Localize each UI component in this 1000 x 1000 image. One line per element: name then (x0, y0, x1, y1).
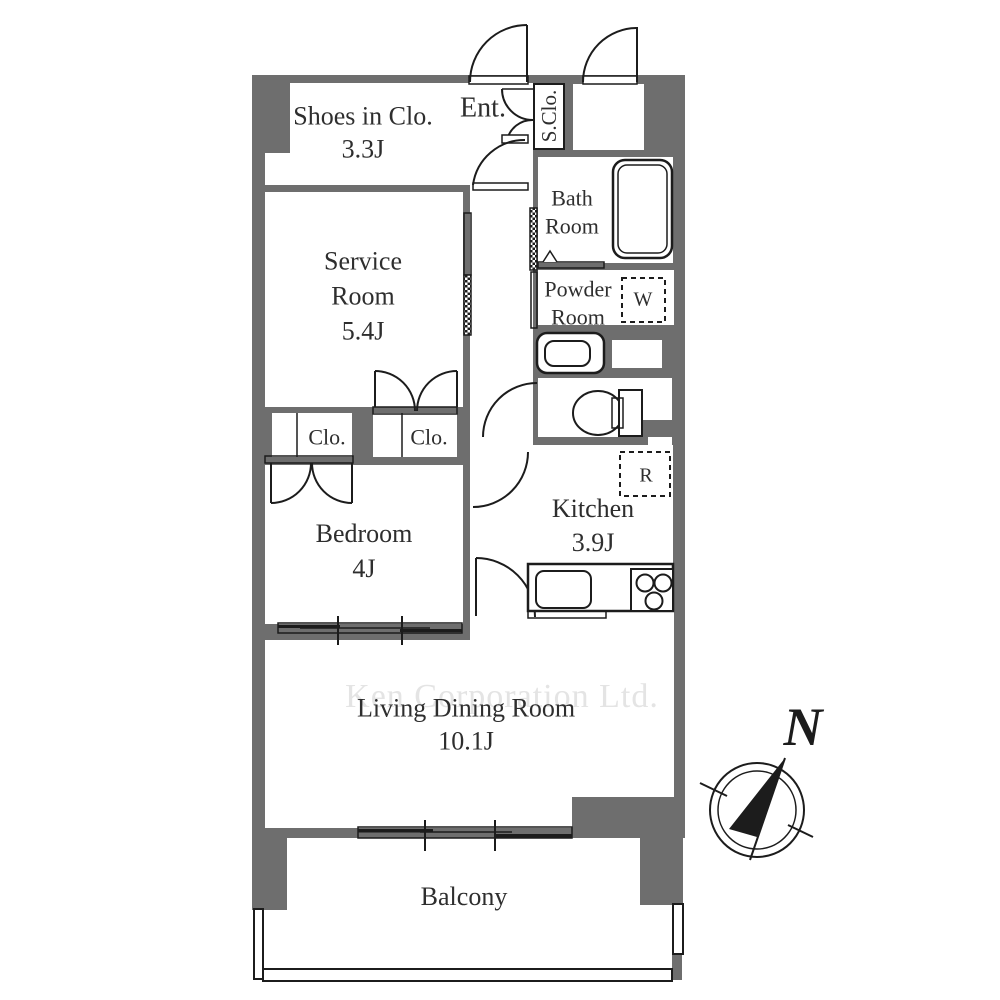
room-label-balcony: Balcony (421, 881, 508, 914)
living-balcony-window (358, 820, 572, 851)
kitchen-living-door (476, 558, 535, 617)
shoes-in-closet-size: 3.3J (293, 133, 432, 166)
room-label-bedroom: Bedroom 4J (316, 516, 413, 586)
kitchen-sink (536, 571, 591, 608)
bath-sliding-door (530, 208, 537, 328)
toilet-door (483, 383, 537, 437)
symbols-layer (0, 0, 1000, 1000)
shoes-in-closet-name: Shoes in Clo. (293, 101, 432, 134)
kitchen-size: 3.9J (552, 526, 634, 560)
closet-right-label: Clo. (410, 423, 447, 451)
room-label-entrance: Ent. (460, 91, 506, 126)
bath-line1: Bath (545, 185, 599, 213)
fridge-label: R (639, 464, 652, 489)
kitchen-name: Kitchen (552, 492, 634, 526)
living-size: 10.1J (357, 725, 575, 758)
room-label-service: Service Room 5.4J (324, 243, 402, 348)
service-closet-doors (373, 371, 457, 414)
toilet (573, 390, 642, 436)
washer-label: W (634, 288, 653, 313)
room-label-living-dining: Living Dining Room 10.1J (357, 693, 575, 758)
compass-north-label: N (784, 696, 823, 758)
compass-needle (729, 758, 785, 837)
room-label-powder: Powder Room (544, 276, 611, 331)
bath-line2: Room (545, 212, 599, 240)
stove (631, 569, 673, 611)
floorplan-canvas: Ken Corporation Ltd. Shoes in Clo. 3.3J … (0, 0, 1000, 1000)
washbasin (537, 333, 604, 373)
bathtub (613, 160, 672, 258)
bedroom-size: 4J (316, 551, 413, 586)
kitchen-counter (528, 564, 673, 618)
powder-line1: Powder (544, 276, 611, 304)
hall-door (473, 140, 528, 190)
service-size: 5.4J (324, 314, 402, 349)
room-label-shoes-in-closet: Shoes in Clo. 3.3J (293, 101, 432, 166)
entrance-door (469, 25, 528, 84)
closet-left-label: Clo. (308, 423, 345, 451)
powder-line2: Room (544, 303, 611, 331)
service-line1: Service (324, 243, 402, 278)
room-label-bath: Bath Room (545, 185, 599, 240)
bedroom-living-partition (278, 616, 462, 645)
compass-rose (700, 758, 813, 860)
bath-door (538, 251, 604, 268)
room-label-kitchen: Kitchen 3.9J (552, 492, 634, 560)
service-line2: Room (324, 278, 402, 313)
secondary-top-door (583, 27, 637, 84)
kitchen-entry-door (473, 452, 528, 507)
bedroom-closet-doors (265, 456, 353, 503)
living-name: Living Dining Room (357, 693, 575, 726)
room-label-shoe-closet: S.Clo. (536, 90, 562, 143)
service-room-sliding-door (464, 213, 471, 335)
shoe-closet-doors (502, 89, 533, 143)
bedroom-name: Bedroom (316, 516, 413, 551)
